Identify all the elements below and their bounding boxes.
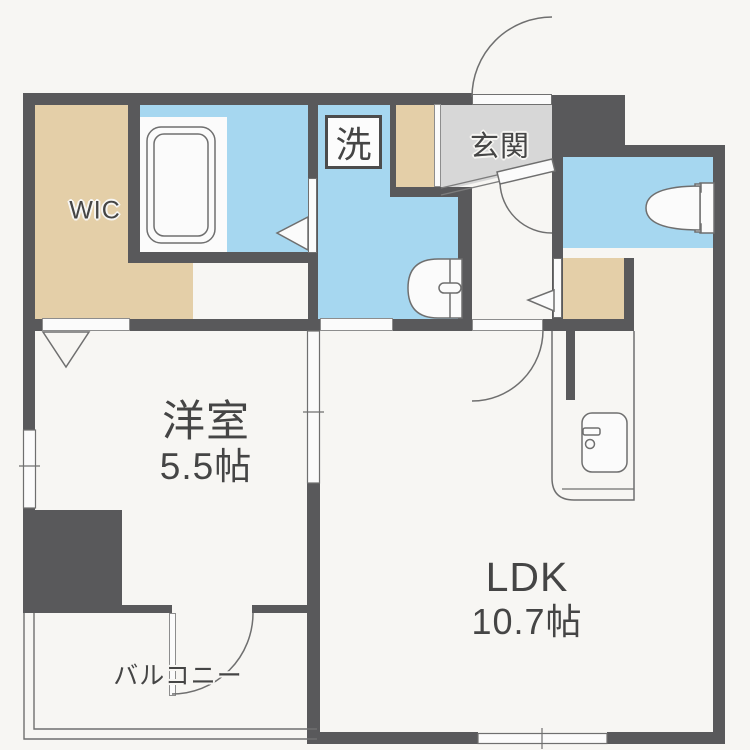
western-room-label: 洋室 5.5帖 [160, 399, 252, 489]
wic-label: WIC [69, 197, 121, 226]
ldk-label: LDK 10.7帖 [471, 555, 582, 643]
western-room-size: 5.5帖 [160, 445, 252, 489]
hall-closet-door-triangle [528, 290, 554, 311]
bathroom-door-triangle [277, 217, 308, 250]
window-room-divider [303, 331, 324, 483]
window-west-wall [19, 430, 40, 508]
western-room-name: 洋室 [160, 399, 252, 445]
wic-door-triangle [43, 332, 89, 367]
laundry-area-box: 洗 [325, 115, 382, 169]
balcony-label: バルコニー [113, 656, 243, 692]
ldk-name: LDK [471, 555, 582, 600]
genkan-label: 玄関 [470, 123, 530, 165]
kitchen-counter-icon [552, 331, 634, 500]
washbasin-icon [408, 259, 462, 318]
line-art-layer [0, 0, 750, 750]
toilet-icon [646, 183, 714, 233]
floor-plan: WIC 洗 玄関 洋室 5.5帖 LDK 10.7帖 バルコニー [0, 0, 750, 750]
window-south-wall [478, 728, 607, 749]
bathtub-icon [147, 127, 215, 243]
laundry-label: 洗 [335, 116, 371, 168]
hallway-door-arc [472, 330, 543, 401]
genkan-inner-door-arc [500, 183, 552, 233]
ldk-size: 10.7帖 [471, 600, 582, 643]
entrance-door-arc [472, 17, 552, 97]
